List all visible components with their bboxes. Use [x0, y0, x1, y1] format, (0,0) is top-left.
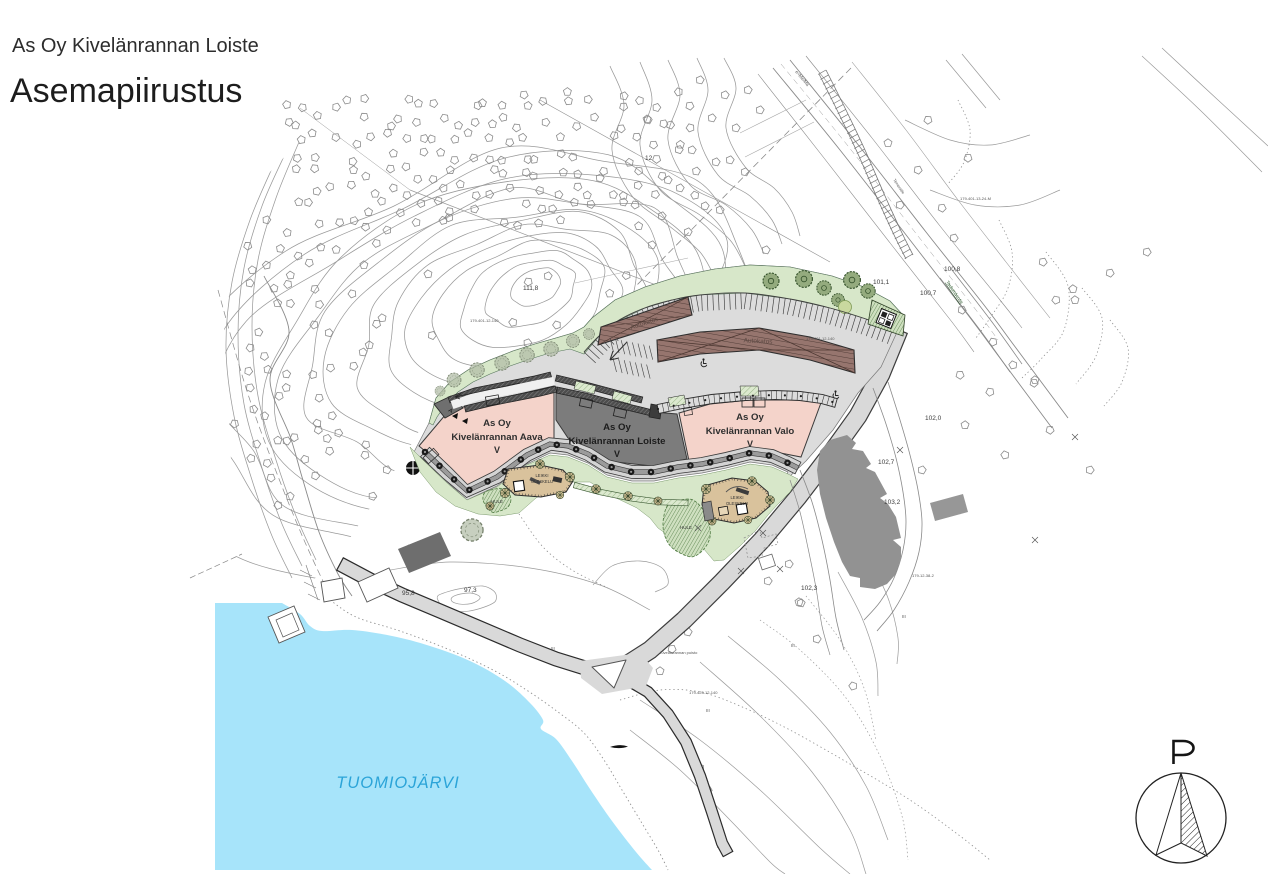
svg-text:As Oy Kivelänrannan Loiste: As Oy Kivelänrannan Loiste	[12, 35, 259, 57]
svg-text:Kivelänrannan Aava: Kivelänrannan Aava	[451, 432, 543, 443]
svg-text:OLESKELU: OLESKELU	[531, 479, 553, 484]
svg-text:TUOMIOJÄRVI: TUOMIOJÄRVI	[336, 774, 459, 792]
svg-text:103,2: 103,2	[884, 499, 901, 506]
svg-text:Kivelänrannan Loiste: Kivelänrannan Loiste	[568, 436, 665, 447]
svg-text:As Oy: As Oy	[736, 412, 764, 423]
svg-text:III: III	[791, 643, 795, 648]
svg-text:V: V	[614, 449, 620, 459]
svg-text:12: 12	[645, 155, 653, 162]
svg-text:102,7: 102,7	[878, 459, 895, 466]
svg-text:LEIKKI: LEIKKI	[730, 495, 743, 500]
svg-text:As Oy: As Oy	[603, 422, 631, 433]
svg-text:102,0: 102,0	[925, 415, 942, 422]
svg-text:Kivelänrannan puisto: Kivelänrannan puisto	[660, 650, 698, 655]
svg-text:Asemapiirustus: Asemapiirustus	[10, 72, 242, 110]
svg-text:97,3: 97,3	[464, 587, 477, 594]
svg-text:V: V	[747, 439, 753, 449]
svg-text:III: III	[706, 708, 710, 713]
svg-text:III: III	[551, 646, 555, 651]
svg-text:100,8: 100,8	[944, 266, 961, 273]
svg-text:111,8: 111,8	[523, 285, 539, 292]
svg-text:101,1: 101,1	[873, 279, 890, 286]
svg-text:HULE: HULE	[680, 525, 692, 530]
svg-text:V: V	[494, 445, 500, 455]
svg-text:179-12-38-2: 179-12-38-2	[912, 573, 935, 578]
svg-text:III: III	[902, 614, 906, 619]
svg-text:As Oy: As Oy	[483, 418, 511, 429]
svg-text:LEIKKI: LEIKKI	[535, 473, 548, 478]
svg-text:100,7: 100,7	[920, 290, 937, 297]
svg-text:179-425-12-140: 179-425-12-140	[689, 690, 718, 695]
svg-text:102,3: 102,3	[801, 585, 818, 592]
svg-text:OLESKELU: OLESKELU	[726, 501, 748, 506]
svg-text:179-401-12-140: 179-401-12-140	[470, 318, 499, 323]
svg-text:95,8: 95,8	[402, 590, 415, 597]
svg-text:179-401-12-140: 179-401-12-140	[806, 336, 835, 341]
svg-text:Kivelänrannan Valo: Kivelänrannan Valo	[706, 426, 795, 437]
svg-text:179-401-13-24-M: 179-401-13-24-M	[960, 196, 991, 201]
